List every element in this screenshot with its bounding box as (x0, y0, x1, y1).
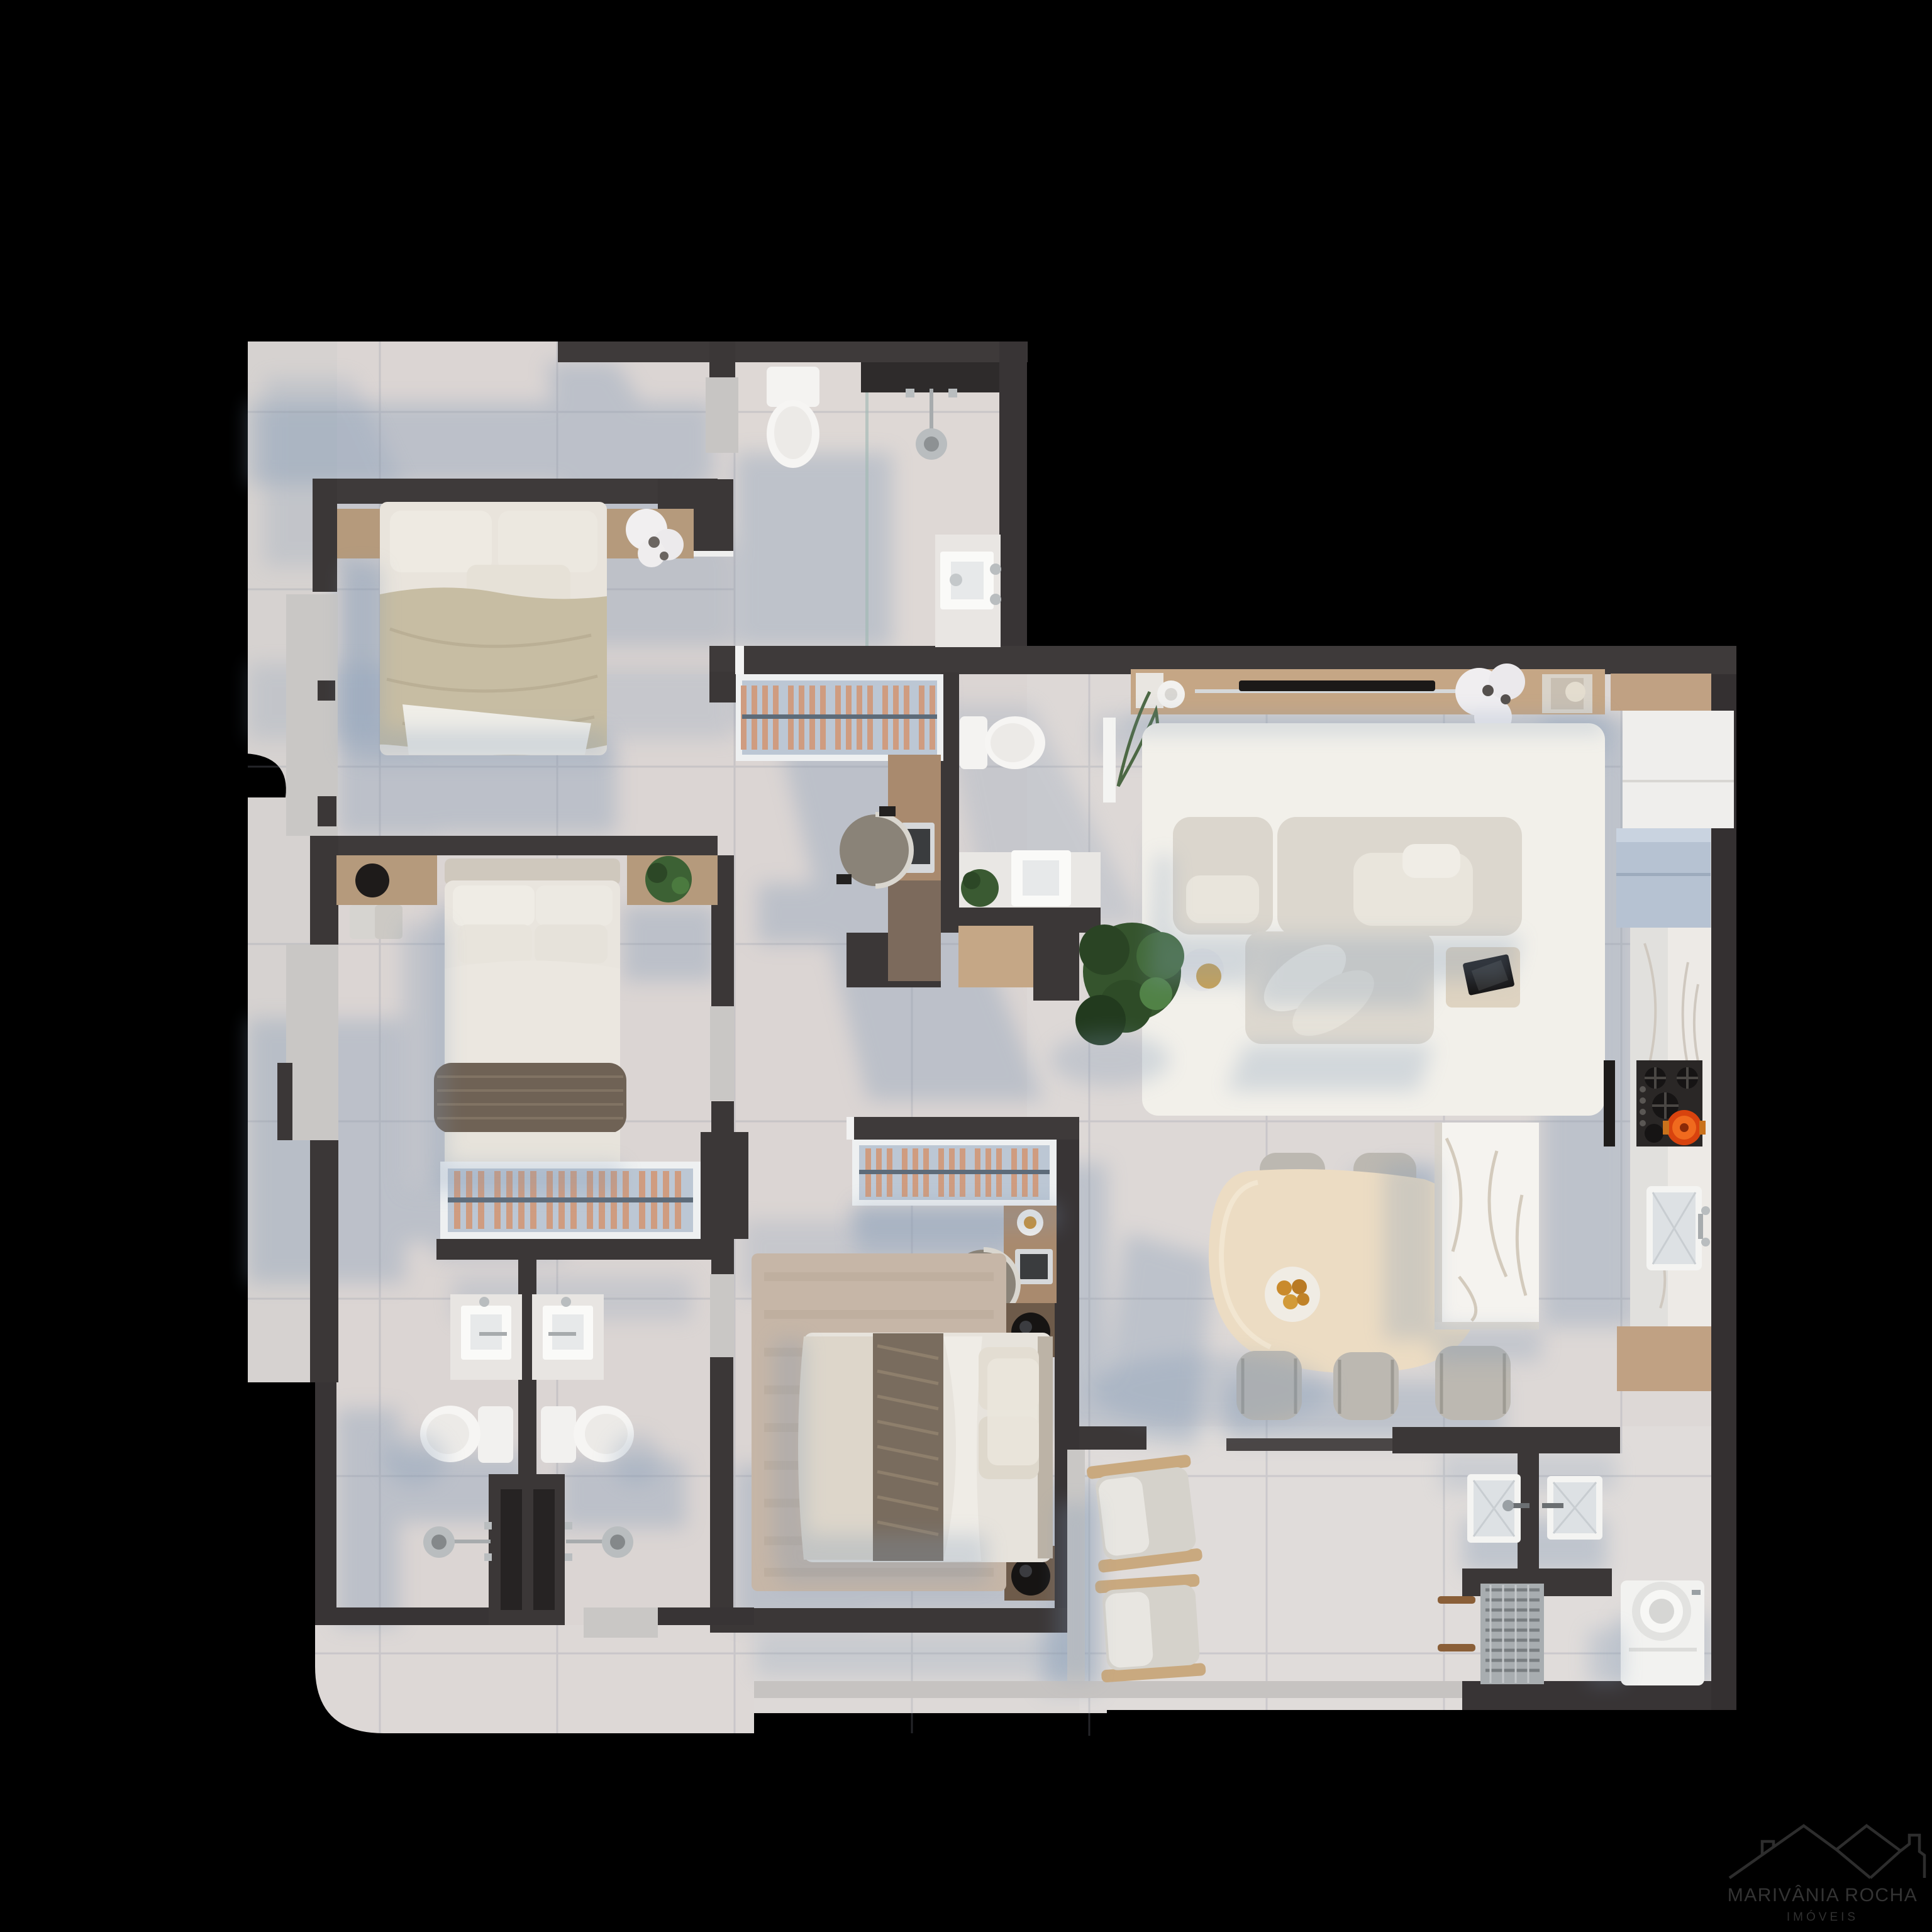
svg-text:MARIVÂNIA ROCHA: MARIVÂNIA ROCHA (1728, 1885, 1918, 1906)
svg-text:IMÓVEIS: IMÓVEIS (1787, 1910, 1858, 1924)
